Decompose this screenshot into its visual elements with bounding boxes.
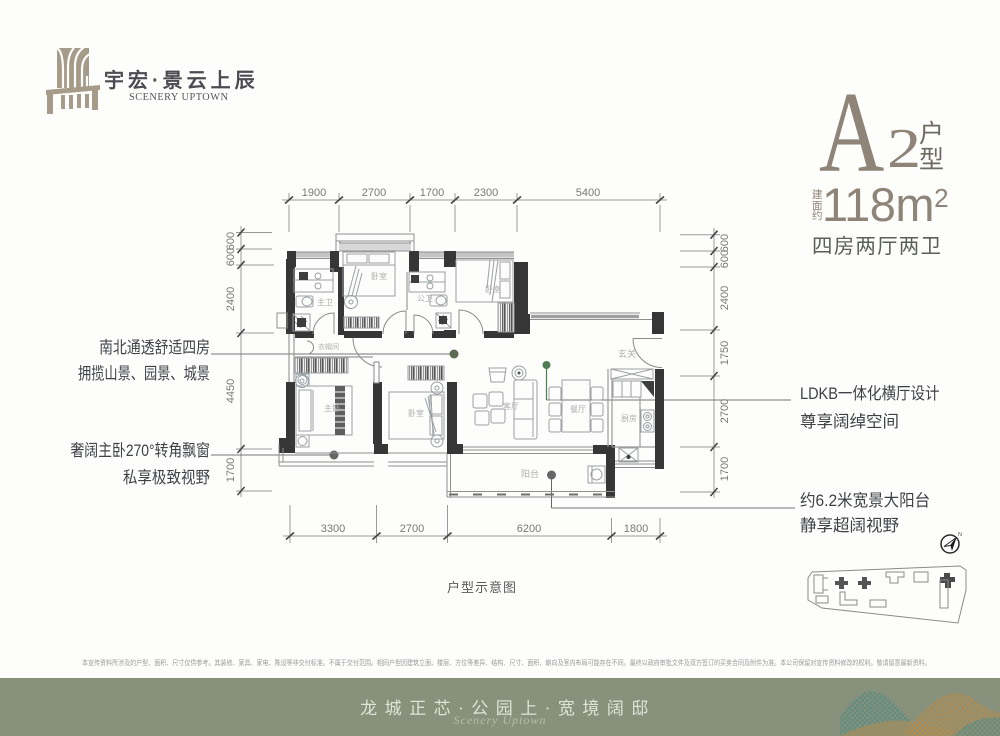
- svg-text:阳台: 阳台: [521, 468, 539, 479]
- svg-text:5400: 5400: [576, 187, 600, 199]
- svg-text:厨房: 厨房: [621, 413, 637, 423]
- svg-text:600: 600: [225, 232, 237, 250]
- svg-text:主卧: 主卧: [324, 403, 340, 413]
- svg-text:3300: 3300: [321, 523, 345, 535]
- svg-text:2700: 2700: [400, 523, 424, 535]
- svg-text:600: 600: [719, 234, 731, 252]
- svg-text:1700: 1700: [719, 457, 731, 481]
- svg-text:6200: 6200: [517, 523, 541, 535]
- svg-text:2400: 2400: [225, 287, 237, 311]
- svg-text:2700: 2700: [362, 187, 386, 199]
- svg-text:1800: 1800: [624, 523, 648, 535]
- svg-text:卧室: 卧室: [485, 284, 501, 294]
- svg-text:1700: 1700: [420, 187, 444, 199]
- svg-text:N: N: [958, 532, 962, 538]
- svg-text:卧室: 卧室: [408, 408, 424, 418]
- svg-text:2400: 2400: [719, 286, 731, 310]
- svg-text:餐厅: 餐厅: [570, 405, 586, 414]
- svg-text:1900: 1900: [302, 187, 326, 199]
- svg-text:2700: 2700: [719, 399, 731, 423]
- svg-text:1700: 1700: [225, 458, 237, 482]
- svg-text:卧室: 卧室: [371, 271, 387, 281]
- svg-text:主卫: 主卫: [317, 297, 333, 307]
- svg-text:2300: 2300: [474, 187, 498, 199]
- svg-text:公卫: 公卫: [417, 294, 433, 303]
- svg-text:1750: 1750: [719, 341, 731, 365]
- svg-text:玄关: 玄关: [618, 348, 636, 359]
- svg-text:4450: 4450: [225, 379, 237, 403]
- svg-text:600: 600: [719, 250, 731, 268]
- svg-text:600: 600: [225, 248, 237, 266]
- svg-text:衣帽间: 衣帽间: [318, 342, 339, 351]
- svg-text:客厅: 客厅: [503, 401, 519, 411]
